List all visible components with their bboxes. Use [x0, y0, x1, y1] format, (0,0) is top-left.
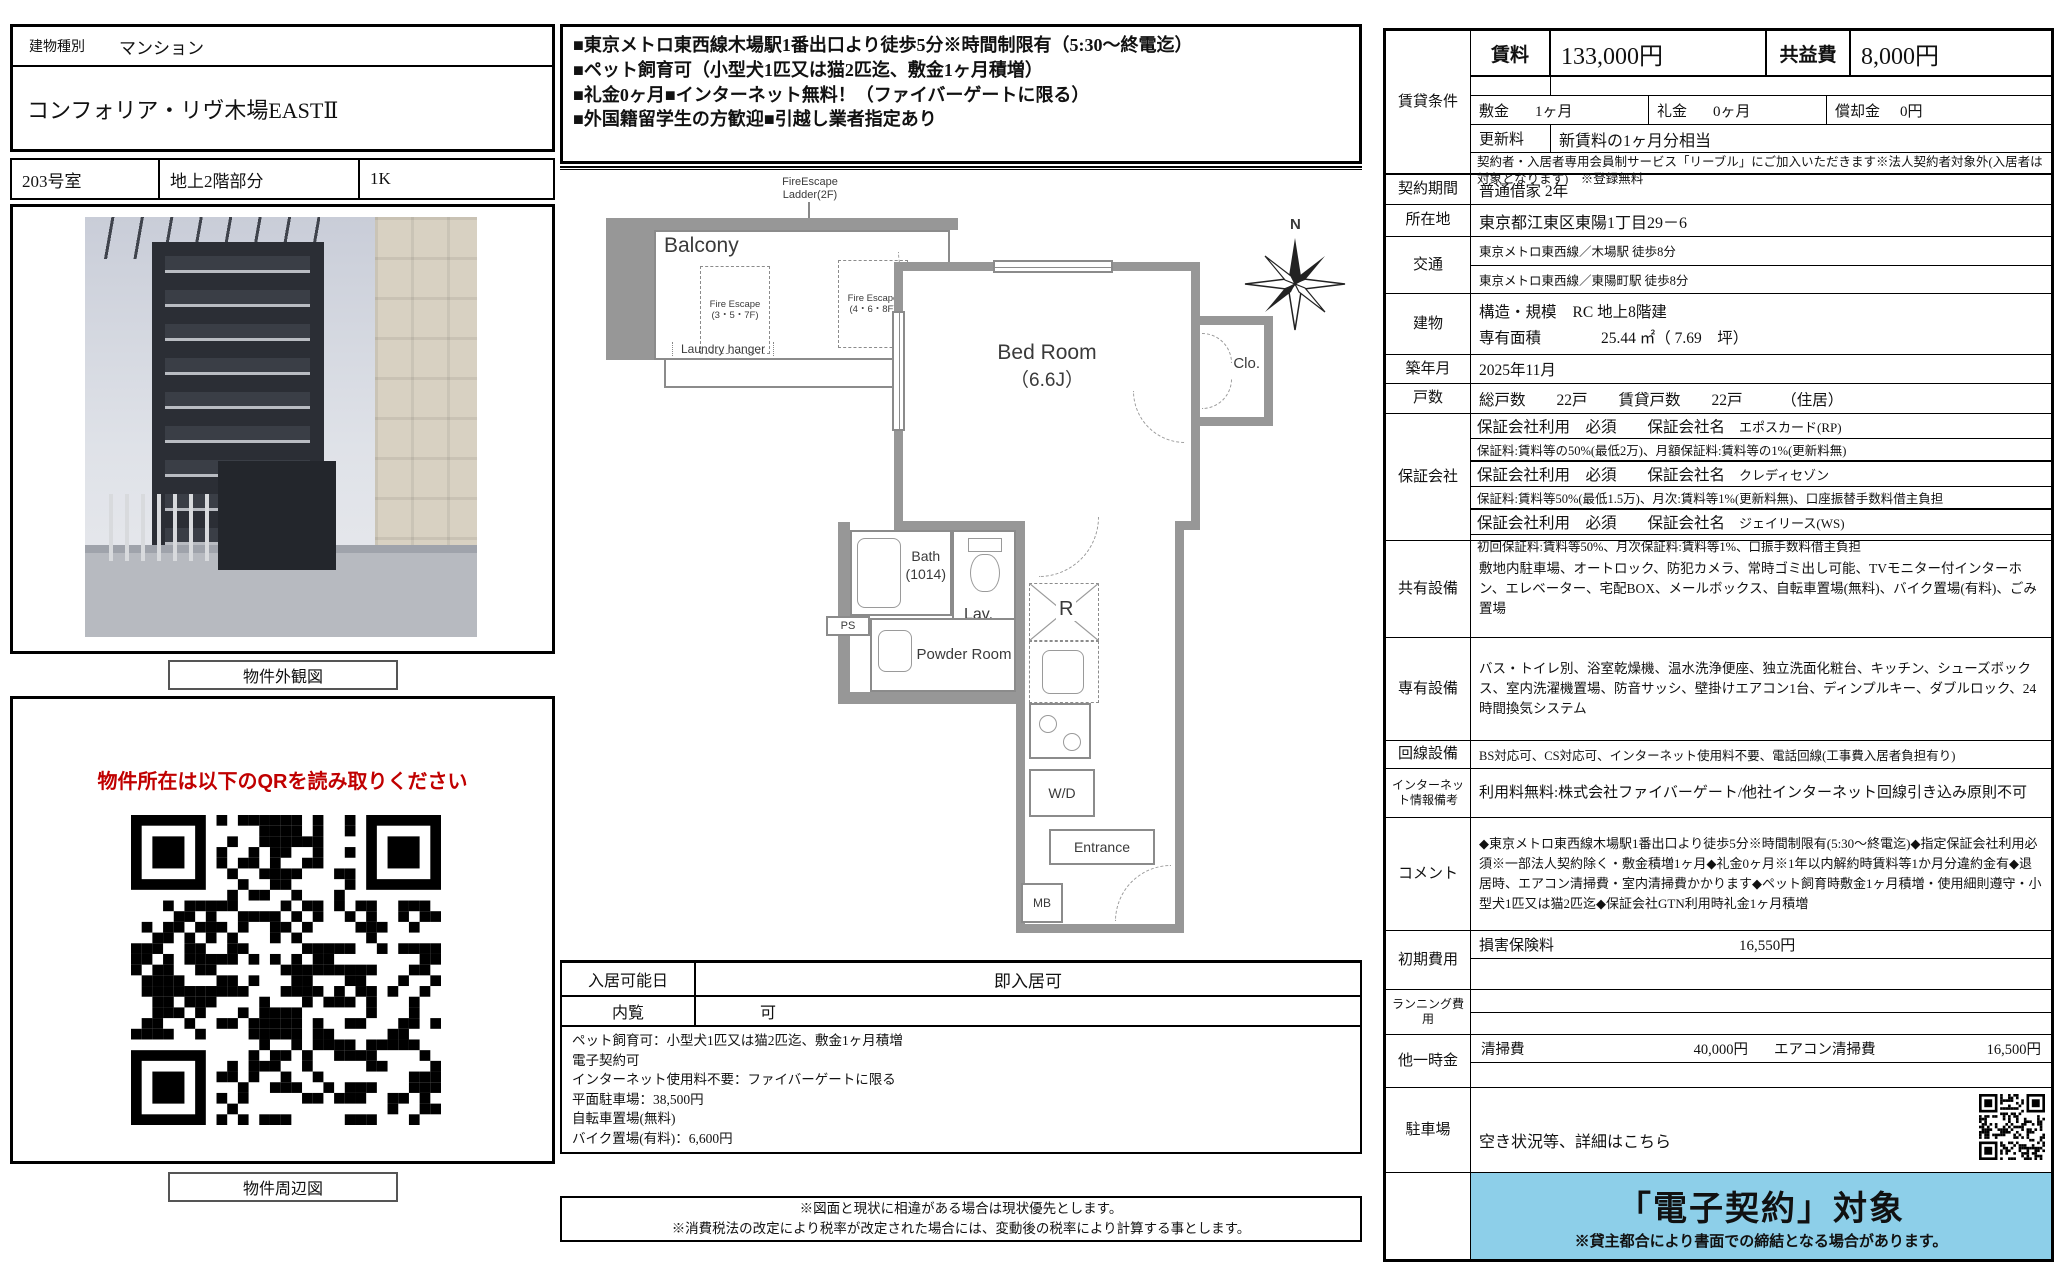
- access-label: 交通: [1386, 237, 1471, 293]
- private-facilities-value: バス・トイレ別、浴室乾燥機、温水洗浄便座、独立洗面化粧台、キッチン、シューズボッ…: [1471, 638, 2051, 740]
- guarantor-name-2: クレディセゾン: [1739, 465, 1829, 484]
- note-line: 平面駐車場：38,500円: [572, 1090, 1350, 1110]
- lavatory: Lav.: [952, 530, 1016, 628]
- compass-star-icon: [1240, 234, 1350, 334]
- highlight-line: ■礼金0ヶ月■インターネット無料！（ファイバーゲートに限る）: [573, 83, 1349, 108]
- common-fee-value: 8,000円: [1851, 31, 2051, 75]
- property-title-box: 建物種別 マンション コンフォリア・リヴ木場EASTⅡ: [10, 24, 555, 152]
- contract-value: 普通借家 2年: [1471, 175, 2051, 204]
- guarantor-label: 保証会社: [1386, 414, 1471, 540]
- comment-row: コメント ◆東京メトロ東西線木場駅1番出口より徒歩5分※時間制限有(5:30～終…: [1386, 817, 2051, 930]
- footnote-line: ※消費税法の改定により税率が改定された場合には、変動後の税率により計算する事とし…: [562, 1219, 1360, 1239]
- initial-cost-label: 初期費用: [1386, 931, 1471, 989]
- structure-value: RC 地上8階建: [1573, 300, 1667, 322]
- map-caption: 物件周辺図: [243, 1175, 323, 1199]
- building-type-label: 建物種別: [29, 36, 85, 56]
- highlights-box: ■東京メトロ東西線木場駅1番出口より徒歩5分※時間制限有（5:30～終電迄） ■…: [560, 24, 1362, 164]
- cleaning-label: 清掃費: [1481, 1038, 1628, 1059]
- key-money-label: 礼金: [1657, 100, 1687, 121]
- photo-caption-box: 物件外観図: [168, 660, 398, 690]
- area-line: 専有面積 25.44 ㎡（ 7.69 坪）: [1479, 326, 2051, 348]
- initial-cost-row: 初期費用 損害保険料 16,550円: [1386, 930, 2051, 989]
- exterior-photo-panel: [10, 204, 555, 654]
- photo-bike-rack: [109, 494, 211, 561]
- fridge-space: R: [1029, 583, 1099, 641]
- running-cost-empty: [1471, 990, 2051, 1013]
- room-info-row: 203号室 地上2階部分 1K: [10, 158, 555, 200]
- building-label: 建物: [1386, 294, 1471, 354]
- bedroom: Bed Room （6.6J）: [894, 262, 1200, 530]
- lease-terms-label: 賃貸条件: [1386, 31, 1471, 173]
- line-facilities-value: BS対応可、CS対応可、インターネット使用料不要、電話回線(工事費入居者負担有り…: [1471, 741, 2051, 768]
- running-cost-label: ランニング費用: [1386, 990, 1471, 1034]
- balcony-label: Balcony: [664, 234, 739, 258]
- internet-value: 利用料無料:株式会社ファイバーゲート/他社インターネット回線引き込み原則不可: [1471, 769, 2051, 817]
- guarantor-header-3: 保証会社利用 必須 保証会社名 ジェイリース(WS): [1471, 510, 2051, 535]
- e-contract-row: 「電子契約」対象 ※貸主都合により書面での締結となる場合があります。: [1386, 1172, 2051, 1259]
- cleaning-value: 40,000円: [1628, 1038, 1774, 1059]
- powder-room: Powder Room: [870, 618, 1016, 692]
- hall-door-arc: [1039, 517, 1099, 577]
- viewing-value: 可: [696, 997, 1360, 1025]
- units-value: 総戸数 22戸 賃貸戸数 22戸 （住居）: [1471, 384, 2051, 413]
- other-fee-empty: [1471, 1063, 2051, 1087]
- floor-plan: FireEscape Ladder(2F) Balcony Fire Escap…: [560, 176, 1362, 958]
- room-floor: 地上2階部分: [158, 158, 360, 200]
- contract-row: 契約期間 普通借家 2年: [1386, 173, 2051, 204]
- renewal-label: 更新料: [1471, 125, 1551, 152]
- line-facilities-row: 回線設備 BS対応可、CS対応可、インターネット使用料不要、電話回線(工事費入居…: [1386, 740, 2051, 768]
- address-row: 所在地 東京都江東区東陽1丁目29－6: [1386, 204, 2051, 236]
- conditions-notes: ペット飼育可：小型犬1匹又は猫2匹迄、敷金1ヶ月積増 電子契約可 インターネット…: [562, 1025, 1360, 1152]
- building-type-value: マンション: [119, 34, 204, 59]
- structure-line: 構造・規模 RC 地上8階建: [1479, 300, 2051, 322]
- toilet-tank-icon: [968, 538, 1002, 552]
- other-fee-label: 他一時金: [1386, 1035, 1471, 1087]
- deposit-value: 1ヶ月: [1535, 100, 1573, 121]
- guarantor-name-3: ジェイリース(WS): [1739, 513, 1845, 532]
- e-contract-title: 「電子契約」対象: [1617, 1181, 1905, 1230]
- pipe-space: PS: [826, 616, 870, 636]
- room-layout: 1K: [358, 158, 555, 200]
- insurance-value: 16,550円: [1739, 934, 1795, 955]
- key-money-value: 0ヶ月: [1713, 100, 1751, 121]
- deposit-row: 敷金 1ヶ月 礼金 0ヶ月 償却金 0円: [1471, 96, 2051, 125]
- footnote-box: ※図面と現状に相違がある場合は現状優先とします。 ※消費税法の改定により税率が改…: [560, 1196, 1362, 1242]
- contract-label: 契約期間: [1386, 175, 1471, 204]
- guarantor-name-1: エポスカード(RP): [1739, 417, 1842, 436]
- qr-panel: 物件所在は以下のQRを読み取りください: [10, 696, 555, 1164]
- fire-escape-ladder-label: FireEscape Ladder(2F): [720, 176, 900, 202]
- entrance-label-box: Entrance: [1049, 829, 1155, 865]
- deposit-label: 敷金: [1479, 100, 1509, 121]
- closet-door-arc: [1202, 333, 1232, 363]
- e-contract-label-cell: [1386, 1173, 1471, 1259]
- running-cost-empty: [1471, 1013, 2051, 1035]
- renewal-value: 新賃料の1ヶ月分相当: [1551, 125, 2051, 152]
- detail-table: 賃貸条件 賃料 133,000円 共益費 8,000円 敷金 1ヶ月 礼金 0ヶ…: [1383, 28, 2054, 1262]
- property-name: コンフォリア・リヴ木場EASTⅡ: [13, 67, 552, 151]
- balcony-wall-top: [606, 218, 958, 230]
- move-in-row: 入居可能日 即入居可: [562, 963, 1360, 995]
- amortization-value: 0円: [1900, 100, 1923, 121]
- viewing-label: 内覧: [562, 997, 696, 1025]
- cleaning-fees-line: 清掃費 40,000円 エアコン清掃費 16,500円: [1471, 1035, 2051, 1063]
- rent-label: 賃料: [1471, 31, 1551, 75]
- e-contract-note: ※貸主都合により書面での締結となる場合があります。: [1575, 1230, 1948, 1251]
- divider-double-rule: [560, 166, 1362, 170]
- stove: [1029, 703, 1091, 759]
- washer-dryer: W/D: [1029, 769, 1095, 817]
- toilet-icon: [970, 554, 1000, 592]
- highlight-line: ■ペット飼育可（小型犬1匹又は猫2匹迄、敷金1ヶ月積増）: [573, 58, 1349, 83]
- e-contract-banner: 「電子契約」対象 ※貸主都合により書面での締結となる場合があります。: [1471, 1173, 2051, 1259]
- area-label: 専有面積: [1479, 326, 1541, 348]
- bedroom-label: Bed Room （6.6J）: [903, 341, 1191, 392]
- other-fee-row: 他一時金 清掃費 40,000円 エアコン清掃費 16,500円: [1386, 1034, 2051, 1087]
- move-in-value: 即入居可: [696, 963, 1360, 995]
- insurance-line: 損害保険料 16,550円: [1471, 931, 2051, 959]
- building-row: 建物 構造・規模 RC 地上8階建 専有面積 25.44 ㎡（ 7.69 坪）: [1386, 293, 2051, 354]
- closet-door-arc: [1202, 379, 1232, 409]
- sink-icon: [878, 630, 912, 672]
- note-line: バイク置場(有料)：6,600円: [572, 1129, 1350, 1149]
- shared-facilities-row: 共有設備 敷地内駐車場、オートロック、防犯カメラ、常時ゴミ出し可能、TVモニター…: [1386, 540, 2051, 637]
- compass: N: [1240, 216, 1350, 336]
- room-number: 203号室: [10, 158, 160, 200]
- structure-label: 構造・規模: [1479, 300, 1557, 322]
- amortization-label: 償却金: [1835, 100, 1880, 121]
- units-row: 戸数 総戸数 22戸 賃貸戸数 22戸 （住居）: [1386, 383, 2051, 413]
- building-photo: [85, 217, 477, 637]
- address-label: 所在地: [1386, 205, 1471, 236]
- address-value: 東京都江東区東陽1丁目29－6: [1471, 205, 2051, 236]
- note-line: 電子契約可: [572, 1051, 1350, 1071]
- wet-wall-left: [838, 522, 850, 702]
- move-in-label: 入居可能日: [562, 963, 696, 995]
- access-line: 東京メトロ東西線／木場駅 徒歩8分: [1471, 237, 2051, 266]
- balcony-wall-left: [606, 218, 654, 360]
- parking-label: 駐車場: [1386, 1088, 1471, 1172]
- closet-label: Clo.: [1233, 355, 1260, 372]
- private-facilities-label: 専有設備: [1386, 638, 1471, 740]
- lease-spacer-row: [1471, 77, 2051, 96]
- building-type-row: 建物種別 マンション: [13, 27, 552, 67]
- map-caption-box: 物件周辺図: [168, 1172, 398, 1202]
- renewal-row: 更新料 新賃料の1ヶ月分相当: [1471, 125, 2051, 153]
- powder-room-label: Powder Room: [916, 628, 1012, 682]
- area-value: 25.44 ㎡（ 7.69 坪）: [1601, 326, 1748, 348]
- viewing-row: 内覧 可: [562, 995, 1360, 1025]
- photo-neighbor-building: [375, 217, 477, 587]
- photo-caption: 物件外観図: [243, 663, 323, 687]
- guarantor-detail-2: 保証料:賃料等50%(最低1.5万)、月次:賃料等1%(更新料無)、口座振替手数…: [1471, 487, 2051, 510]
- shared-facilities-value: 敷地内駐車場、オートロック、防犯カメラ、常時ゴミ出し可能、TVモニター付インター…: [1471, 541, 2051, 637]
- entrance-area: Entrance MB: [1016, 821, 1184, 933]
- guarantor-detail-1: 保証料:賃料等の50%(最低2万)、月額保証料:賃料等の1%(更新料無): [1471, 439, 2051, 462]
- stove-burner-icon: [1063, 733, 1081, 751]
- laundry-hanger-label: Laundry hanger: [672, 342, 774, 356]
- note-line: 自転車置場(無料): [572, 1109, 1350, 1129]
- common-fee-label: 共益費: [1767, 31, 1851, 75]
- guarantor-header-1: 保証会社利用 必須 保証会社名 エポスカード(RP): [1471, 414, 2051, 439]
- bathroom: Bath (1014): [850, 530, 952, 616]
- built-value: 2025年11月: [1471, 355, 2051, 383]
- shared-facilities-label: 共有設備: [1386, 541, 1471, 637]
- stove-burner-icon: [1039, 715, 1057, 733]
- parking-value: 空き状況等、詳細はこちら: [1479, 1128, 1671, 1152]
- map-qr-code: [131, 815, 441, 1125]
- lease-terms-row: 賃貸条件 賃料 133,000円 共益費 8,000円 敷金 1ヶ月 礼金 0ヶ…: [1386, 31, 2051, 173]
- compass-north-label: N: [1290, 216, 1301, 233]
- initial-cost-empty: [1471, 959, 2051, 989]
- kitchen-corridor: R W/D: [1016, 521, 1184, 821]
- private-facilities-row: 専有設備 バス・トイレ別、浴室乾燥機、温水洗浄便座、独立洗面化粧台、キッチン、シ…: [1386, 637, 2051, 740]
- bathtub-icon: [857, 538, 901, 608]
- kitchen-sink: [1029, 641, 1099, 703]
- bath-label: Bath (1014): [906, 548, 946, 583]
- highlight-line: ■外国籍留学生の方歓迎■引越し業者指定あり: [573, 107, 1349, 132]
- rent-row: 賃料 133,000円 共益費 8,000円: [1471, 31, 2051, 77]
- internet-label: インターネット情報備考: [1386, 769, 1471, 817]
- footnote-line: ※図面と現状に相違がある場合は現状優先とします。: [562, 1199, 1360, 1219]
- note-line: ペット飼育可：小型犬1匹又は猫2匹迄、敷金1ヶ月積増: [572, 1031, 1350, 1051]
- insurance-label: 損害保険料: [1479, 934, 1739, 955]
- built-row: 築年月 2025年11月: [1386, 354, 2051, 383]
- entrance-door-arc: [1115, 865, 1171, 921]
- note-line: インターネット使用料不要：ファイバーゲートに限る: [572, 1070, 1350, 1090]
- access-line: 東京メトロ東西線／東陽町駅 徒歩8分: [1471, 266, 2051, 294]
- running-cost-row: ランニング費用: [1386, 989, 2051, 1034]
- bedroom-door-arc: [1133, 391, 1185, 443]
- comment-value: ◆東京メトロ東西線木場駅1番出口より徒歩5分※時間制限有(5:30～終電迄)◆指…: [1471, 818, 2051, 930]
- fire-escape-hatch-1: Fire Escape (3・5・7F): [700, 266, 770, 354]
- photo-fence: [218, 461, 336, 570]
- parking-qr-code: [1979, 1094, 2045, 1160]
- wet-wall-bottom: [838, 692, 1018, 704]
- internet-row: インターネット情報備考 利用料無料:株式会社ファイバーゲート/他社インターネット…: [1386, 768, 2051, 817]
- guarantor-row: 保証会社 保証会社利用 必須 保証会社名 エポスカード(RP) 保証料:賃料等の…: [1386, 413, 2051, 540]
- highlight-line: ■東京メトロ東西線木場駅1番出口より徒歩5分※時間制限有（5:30～終電迄）: [573, 33, 1349, 58]
- parking-row: 駐車場 空き状況等、詳細はこちら: [1386, 1087, 2051, 1172]
- built-label: 築年月: [1386, 355, 1471, 383]
- comment-label: コメント: [1386, 818, 1471, 930]
- guarantor-header-2: 保証会社利用 必須 保証会社名 クレディセゾン: [1471, 462, 2051, 487]
- mailbox: MB: [1021, 883, 1063, 923]
- ac-cleaning-value: 16,500円: [1921, 1038, 2041, 1059]
- access-row: 交通 東京メトロ東西線／木場駅 徒歩8分 東京メトロ東西線／東陽町駅 徒歩8分: [1386, 236, 2051, 293]
- fridge-label: R: [1056, 598, 1076, 621]
- qr-notice-text: 物件所在は以下のQRを読み取りください: [13, 765, 552, 794]
- bedroom-window: [993, 260, 1113, 273]
- ac-cleaning-label: エアコン清掃費: [1774, 1038, 1921, 1059]
- availability-table: 入居可能日 即入居可 内覧 可 ペット飼育可：小型犬1匹又は猫2匹迄、敷金1ヶ月…: [560, 960, 1362, 1154]
- line-facilities-label: 回線設備: [1386, 741, 1471, 768]
- rent-value: 133,000円: [1551, 31, 1767, 75]
- units-label: 戸数: [1386, 384, 1471, 413]
- kitchen-sink-basin-icon: [1042, 650, 1084, 694]
